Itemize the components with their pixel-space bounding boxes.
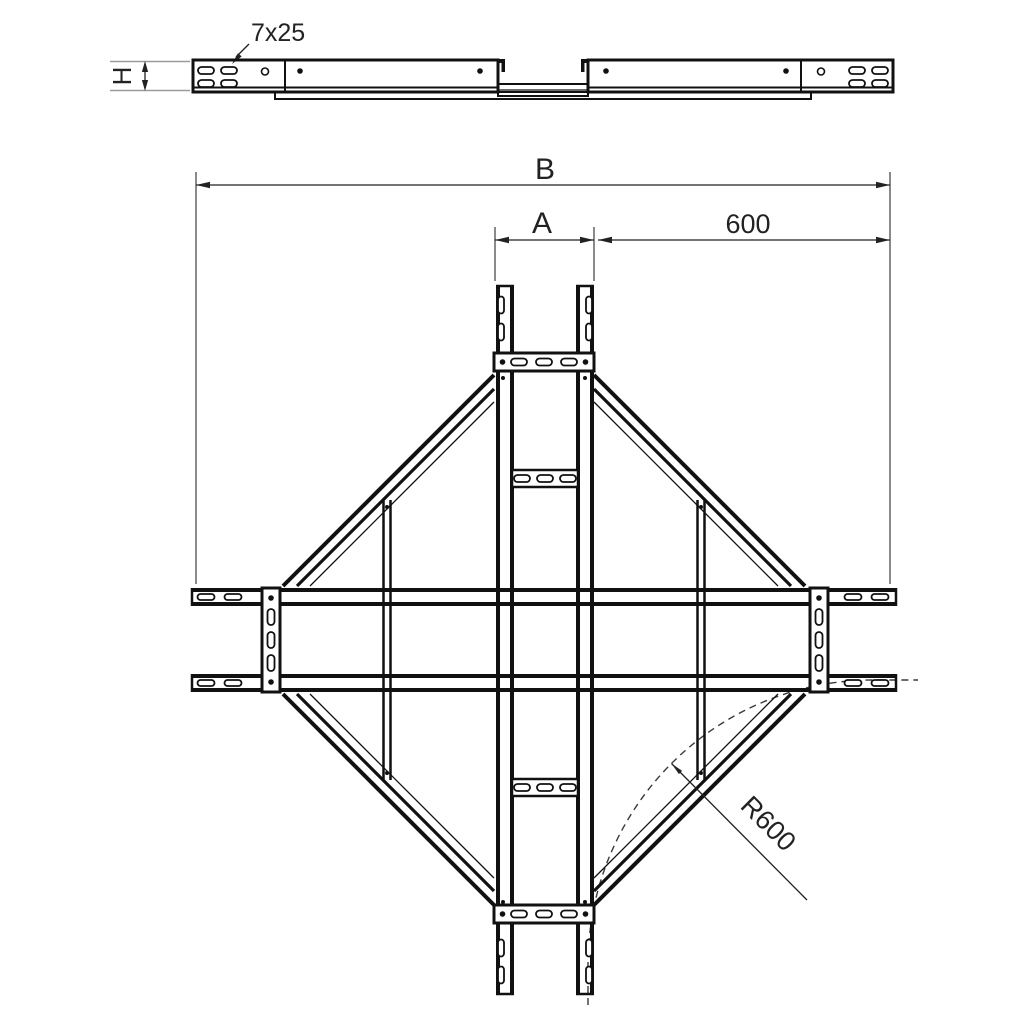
radius-annotation: R600 xyxy=(672,764,808,901)
mouth-rung-top xyxy=(494,353,594,371)
dim-label-a: A xyxy=(532,207,552,240)
cross-piece-body xyxy=(192,286,896,994)
arrow-up-icon xyxy=(142,61,148,72)
branch-length-dimension: 600 xyxy=(598,209,890,243)
diagonal-rail-bottom-right xyxy=(594,694,805,905)
bend-radius-arc xyxy=(588,680,918,1005)
side-view: H 7x25 xyxy=(107,19,893,99)
a-dimension: A xyxy=(495,207,594,281)
technical-drawing-canvas: H 7x25 xyxy=(0,0,1024,1024)
dim-label-h: H xyxy=(107,67,137,86)
radius-label-r600: R600 xyxy=(735,790,802,857)
mouth-rung-bottom xyxy=(494,905,594,923)
dim-label-600: 600 xyxy=(725,209,770,239)
side-profile xyxy=(193,59,893,99)
plan-view: B A 600 xyxy=(192,153,918,1005)
interior-rung-left xyxy=(384,500,391,780)
mouth-rung-right xyxy=(810,588,828,692)
diagonal-rail-bottom-left xyxy=(283,694,494,905)
center-rung-lower xyxy=(512,779,578,796)
diagonal-rail-top-left xyxy=(283,375,494,586)
mouth-rung-left xyxy=(262,588,280,692)
diagonal-rail-top-right xyxy=(594,375,805,586)
arrow-down-icon xyxy=(142,80,148,91)
drawing-page: H 7x25 xyxy=(0,0,1024,1024)
center-rung-upper xyxy=(512,470,578,487)
stub-slots xyxy=(198,297,889,984)
slot-size-callout: 7x25 xyxy=(232,19,305,64)
h-dimension: H xyxy=(107,61,190,91)
slot-size-label: 7x25 xyxy=(251,19,305,47)
dim-label-b: B xyxy=(535,153,555,186)
